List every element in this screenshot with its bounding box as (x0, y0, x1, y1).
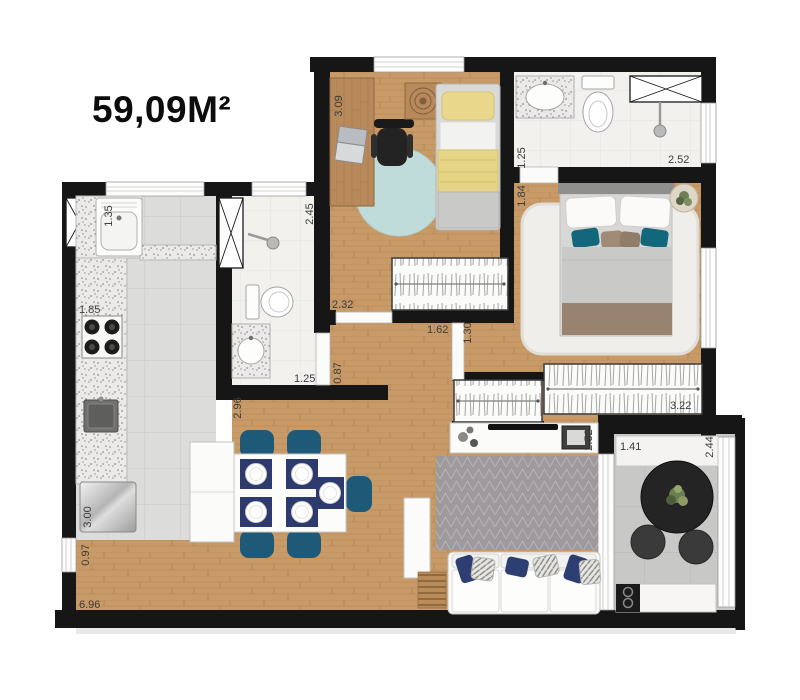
social-bath-window (252, 182, 306, 196)
grill-counter (616, 584, 716, 612)
suite-bath-window (701, 103, 716, 163)
wardrobe-master-left (454, 380, 542, 422)
dim-service-window: 0.97 (80, 544, 92, 565)
chevron-rug (436, 456, 598, 550)
console-cabinet (404, 498, 430, 578)
dim-bedroom1-depth: 3.09 (333, 95, 345, 116)
service-window (62, 538, 76, 572)
dim-kitchen-length: 3.00 (82, 506, 94, 527)
dim-social-bath-door: 0.87 (332, 362, 344, 383)
yellow-pillow (442, 92, 494, 120)
striped-pillow (579, 559, 601, 585)
wall-bottom (55, 610, 742, 628)
suite-toilet (582, 76, 614, 132)
stool (631, 525, 665, 559)
dim-suite-entry: 1.84 (516, 185, 528, 206)
dim-suite-bath-length: 2.52 (668, 154, 689, 166)
dim-suite-wardrobe: 3.22 (670, 400, 691, 412)
gray-blanket (562, 247, 672, 303)
headboard (558, 183, 674, 194)
laptop (335, 126, 367, 164)
bedside-table (670, 184, 698, 212)
toilet (246, 285, 293, 319)
kitchen-counter-strip (140, 245, 216, 260)
wall-under-wardrobe1 (392, 310, 502, 323)
bedroom1-door (336, 312, 392, 323)
area-label: 59,09M² (92, 89, 231, 130)
tv (488, 424, 558, 430)
teal-pillow (640, 227, 669, 249)
bathroom-sink (232, 324, 270, 378)
dim-suite-door: 1.30 (462, 322, 474, 343)
sofa (448, 552, 601, 614)
doormat (418, 572, 446, 608)
kitchen-counter-left (76, 258, 127, 484)
wall-partition-stub (598, 434, 614, 454)
teal-pillow (571, 227, 600, 249)
dim-balcony-width: 1.41 (620, 441, 641, 453)
wall-bedroom1-left (314, 57, 330, 333)
balcony-table (641, 461, 713, 533)
dim-social-bath-width: 1.25 (294, 373, 315, 385)
dim-living-width: 2.52 (583, 429, 595, 450)
dim-balcony-depth: 2.44 (704, 436, 716, 457)
dim-hallway-length: 2.32 (332, 299, 353, 311)
balcony-glass (718, 437, 735, 607)
striped-pillow (532, 554, 560, 579)
dim-suite-bath-width: 1.25 (516, 147, 528, 168)
master-window (701, 248, 716, 348)
tv-console (450, 423, 598, 453)
floor-plan-page: 59,09M² 1.35 3.09 1.25 1.84 2.52 2.45 1.… (0, 0, 800, 700)
double-bed (558, 183, 674, 336)
dim-kitchen-window: 1.35 (103, 205, 115, 226)
striped-pillow (471, 557, 496, 582)
dim-social-bath-depth: 2.45 (304, 203, 316, 224)
stool (679, 530, 713, 564)
wall-hall-corner (320, 310, 336, 325)
social-bath-door (316, 333, 330, 385)
foot-throw (562, 303, 672, 335)
dim-kitchen-counter: 1.85 (79, 304, 100, 316)
dining-chair (287, 530, 321, 558)
suite-sink (516, 76, 574, 118)
kitchen-window (106, 182, 204, 196)
dim-total-width: 6.96 (79, 599, 100, 611)
single-bed (436, 84, 500, 230)
wall-shadow (76, 628, 736, 634)
kitchen-sink (84, 397, 118, 433)
wall-balcony-top (598, 415, 742, 434)
dining-chair (346, 476, 372, 512)
floor-plan: 59,09M² 1.35 3.09 1.25 1.84 2.52 2.45 1.… (0, 0, 800, 700)
brown-pillow (619, 231, 641, 249)
yellow-blanket (438, 150, 498, 192)
dim-hallway-opening: 1.62 (427, 324, 448, 336)
wardrobe-bedroom1 (392, 258, 508, 310)
stove (82, 316, 122, 358)
bedroom1-window (374, 57, 464, 72)
dining-chair (240, 530, 274, 558)
wall-balcony-right (735, 418, 745, 630)
dim-kitchen-wall: 2.96 (232, 397, 244, 418)
